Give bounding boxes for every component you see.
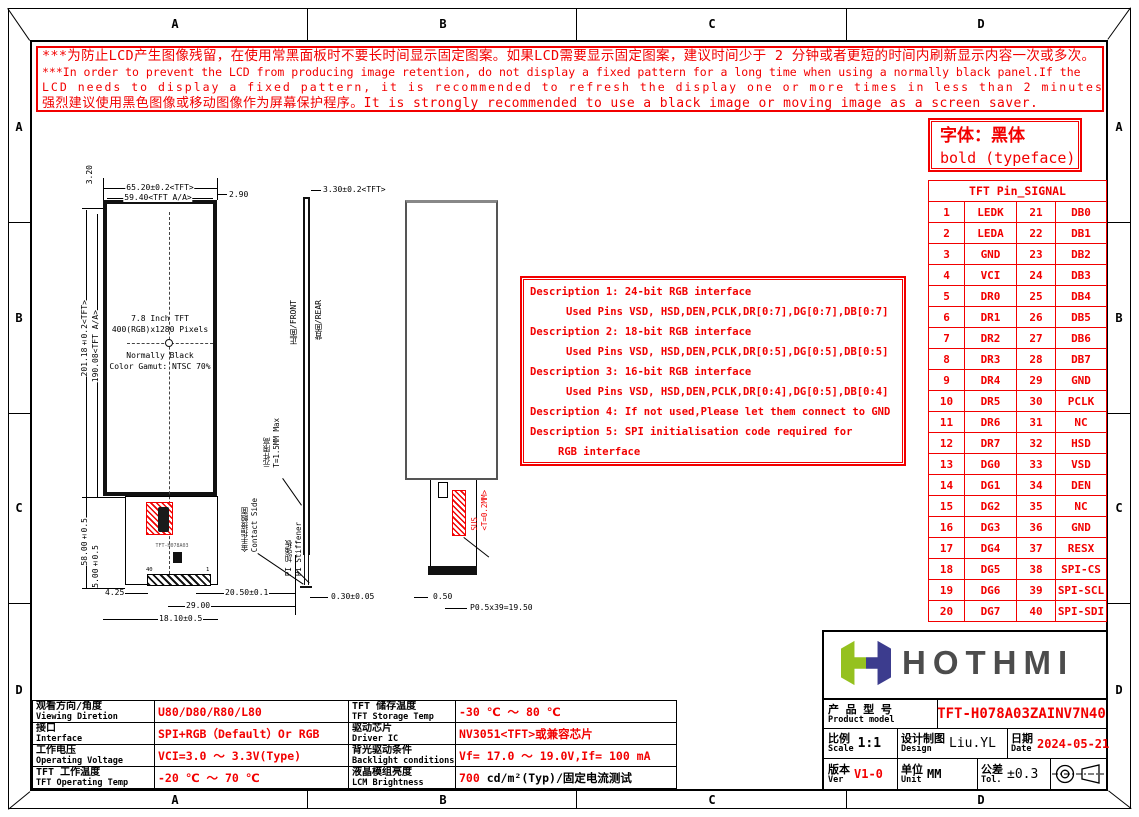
dim-bot-a: 4.25 <box>104 589 125 597</box>
pin-cell: DR1 <box>965 307 1017 328</box>
lcd-rear-view <box>405 200 498 480</box>
pin-cell: 31 <box>1017 412 1056 433</box>
pin-cell: 9 <box>929 370 965 391</box>
design-value: Liu.YL <box>949 736 996 751</box>
pin-cell: 20 <box>929 601 965 622</box>
lcd-side-view <box>303 197 310 555</box>
pin-cell: 39 <box>1017 580 1056 601</box>
description-line: Used Pins VSD, HSD,DEN,PCLK,DR[0:7],DG[0… <box>530 302 898 322</box>
pin-cell: 35 <box>1017 496 1056 517</box>
side-front-label: 正面/FRONT <box>290 300 298 345</box>
tol-value: ±0.3 <box>1007 767 1038 782</box>
pin-cell: 22 <box>1017 223 1056 244</box>
pin-cell: DR4 <box>965 370 1017 391</box>
spec-row: TFT 工作温度TFT Operating Temp-20 ℃ ～ 70 ℃ <box>33 767 349 789</box>
frame-tick <box>307 8 308 40</box>
fpc-pin40-label: 40 <box>146 567 153 573</box>
side-rear-label: 背面/REAR <box>315 300 323 340</box>
pin-cell: 28 <box>1017 349 1056 370</box>
frame-tick <box>8 222 30 223</box>
pin-cell: RESX <box>1056 538 1107 559</box>
date-label-en: Date <box>1011 745 1033 754</box>
pin-cell: DR0 <box>965 286 1017 307</box>
pin-cell: LEDK <box>965 202 1017 223</box>
pin-cell: NC <box>1056 496 1107 517</box>
font-note-en: bold (typeface) <box>940 148 1070 169</box>
dim-ext <box>82 497 125 498</box>
description-lines: Description 1: 24-bit RGB interfaceUsed … <box>523 279 903 463</box>
scale-cell: 比例Scale 1:1 <box>824 729 897 758</box>
grid-letter: C <box>15 501 22 515</box>
dim-height: 201.18±0.2<TFT> <box>81 300 89 376</box>
ver-label-cn: 版本 <box>828 764 850 776</box>
spec-value: -20 ℃ ～ 70 ℃ <box>155 767 349 789</box>
description-line: Description 5: SPI initialisation code r… <box>530 422 898 442</box>
pin-cell: GND <box>1056 370 1107 391</box>
grid-letter: A <box>171 793 178 807</box>
pin-row: 8DR328DB7 <box>929 349 1107 370</box>
spec-table-right: TFT 储存温度TFT Storage Temp-30 ℃ ～ 80 ℃驱动芯片… <box>348 700 677 789</box>
tolerance-cell: 公差Tol. ±0.3 <box>977 759 1050 789</box>
pin-row: 13DG033VSD <box>929 454 1107 475</box>
description-line: RGB interface <box>530 442 898 462</box>
version-cell: 版本Ver V1-0 <box>824 759 897 789</box>
pin-row: 20DG740SPI-SDI <box>929 601 1107 622</box>
pin-cell: 16 <box>929 517 965 538</box>
warning-line-mixed: 强烈建议使用黑色图像或移动图像作为屏幕保护程序。It is strongly r… <box>42 96 1098 112</box>
pin-cell: DG7 <box>965 601 1017 622</box>
spec-label: 接口Interface <box>33 723 155 745</box>
pin-cell: SPI-SCL <box>1056 580 1107 601</box>
pin-cell: 36 <box>1017 517 1056 538</box>
pin-cell: 21 <box>1017 202 1056 223</box>
component-height-cn: 元件限高 <box>262 418 271 468</box>
pin-row: 17DG437RESX <box>929 538 1107 559</box>
pin-cell: DR6 <box>965 412 1017 433</box>
dim-ext <box>82 208 103 209</box>
pin-row: 5DR025DB4 <box>929 286 1107 307</box>
pin-cell: 33 <box>1017 454 1056 475</box>
design-label-en: Design <box>901 745 945 754</box>
frame-tick <box>846 8 847 40</box>
dim-ext <box>103 178 104 200</box>
spec-row: 液晶模组亮度LCM Brightness700 cd/m²(Typ)/固定电流测… <box>349 767 677 789</box>
description-line: Used Pins VSD, HSD,DEN,PCLK,DR[0:4],DG[0… <box>530 382 898 402</box>
font-note-box: 字体：黑体 bold (typeface) <box>928 118 1082 172</box>
contact-side-en: Contact Side <box>250 498 259 552</box>
panel-spec-line: 7.8 Inch TFT <box>104 315 216 323</box>
description-line: Description 3: 16-bit RGB interface <box>530 362 898 382</box>
company-logo: HOTHMI <box>838 638 1074 688</box>
fpc-pin1-label: 1 <box>206 567 209 573</box>
date-value: 2024-05-21 <box>1037 737 1109 751</box>
dim-top-offset: 3.20 <box>86 165 94 184</box>
pin-cell: DB5 <box>1056 307 1107 328</box>
date-cell: 日期Date 2024-05-21 <box>1007 729 1106 758</box>
pin-cell: DG1 <box>965 475 1017 496</box>
pin-cell: 15 <box>929 496 965 517</box>
spec-value: U80/D80/R80/L80 <box>155 701 349 723</box>
spec-row: TFT 储存温度TFT Storage Temp-30 ℃ ～ 80 ℃ <box>349 701 677 723</box>
font-note-cn: 字体：黑体 <box>940 125 1070 148</box>
pin-cell: DG6 <box>965 580 1017 601</box>
grid-letter: C <box>1115 501 1122 515</box>
pin-row: 9DR429GND <box>929 370 1107 391</box>
unit-value: MM <box>927 767 941 781</box>
pin-cell: DR7 <box>965 433 1017 454</box>
pin-cell: 24 <box>1017 265 1056 286</box>
dim-bot-c: 29.00 <box>185 602 211 610</box>
pin-row: 14DG134DEN <box>929 475 1107 496</box>
pin-cell: DB7 <box>1056 349 1107 370</box>
pin-cell: DR5 <box>965 391 1017 412</box>
product-model-label-cell: 产 品 型 号 Product model <box>824 700 937 728</box>
pin-cell: 10 <box>929 391 965 412</box>
spec-value: 700 cd/m²(Typ)/固定电流测试 <box>456 767 677 789</box>
lcd-front-view <box>103 200 217 496</box>
unit-label-cn: 单位 <box>901 764 923 776</box>
hothmi-h-icon <box>838 638 894 688</box>
description-box: Description 1: 24-bit RGB interfaceUsed … <box>520 276 906 466</box>
pin-cell: DB2 <box>1056 244 1107 265</box>
panel-spec-line: Normally Black <box>104 352 216 360</box>
grid-letter: D <box>15 683 22 697</box>
dim-line <box>311 190 321 191</box>
description-line: Description 4: If not used,Please let th… <box>530 402 898 422</box>
pin-row: 1LEDK21DB0 <box>929 202 1107 223</box>
pin-table-title: TFT Pin_SIGNAL <box>929 181 1107 202</box>
first-angle-projection-icon <box>1052 762 1104 786</box>
dim-rear-pitch: P0.5x39=19.50 <box>469 604 534 612</box>
dim-bot-d: 18.10±0.5 <box>158 615 203 623</box>
rear-sus-hatch <box>452 490 466 536</box>
grid-letter: B <box>1115 311 1122 325</box>
pin-cell: 6 <box>929 307 965 328</box>
pin-cell: 12 <box>929 433 965 454</box>
spec-label: TFT 储存温度TFT Storage Temp <box>349 701 456 723</box>
pin-row: 4VCI24DB3 <box>929 265 1107 286</box>
product-model-label-cn: 产 品 型 号 <box>828 704 895 716</box>
pin-cell: DG3 <box>965 517 1017 538</box>
frame-tick <box>1108 413 1131 414</box>
scale-value: 1:1 <box>858 736 881 751</box>
unit-cell: 单位Unit MM <box>897 759 977 789</box>
pin-row: 16DG336GND <box>929 517 1107 538</box>
tol-label-en: Tol. <box>981 776 1003 785</box>
pi-stiffener-note: PI 加强板 PI Stiffener <box>284 522 303 576</box>
pin-cell: LEDA <box>965 223 1017 244</box>
dim-side-bottom: 0.30±0.05 <box>330 593 375 601</box>
pin-cell: GND <box>1056 517 1107 538</box>
pin-cell: 3 <box>929 244 965 265</box>
pin-cell: 1 <box>929 202 965 223</box>
pin-row: 6DR126DB5 <box>929 307 1107 328</box>
pin-cell: 17 <box>929 538 965 559</box>
pin-cell: SPI-CS <box>1056 559 1107 580</box>
pin-cell: 27 <box>1017 328 1056 349</box>
spec-value: -30 ℃ ～ 80 ℃ <box>456 701 677 723</box>
fpc-connector-fingers <box>147 574 211 586</box>
pin-cell: HSD <box>1056 433 1107 454</box>
pin-cell: DG0 <box>965 454 1017 475</box>
frame-tick <box>576 8 577 40</box>
frame-tick <box>1108 603 1131 604</box>
grid-letter: A <box>15 120 22 134</box>
dim-height-aa: 190.08<TFT A/A> <box>92 310 100 382</box>
pin-row: 2LEDA22DB1 <box>929 223 1107 244</box>
grid-letter: D <box>1115 683 1122 697</box>
pin-cell: 18 <box>929 559 965 580</box>
warning-line-cn: ***为防止LCD产生图像残留，在使用常黑面板时不要长时间显示固定图案。如果LC… <box>42 49 1098 65</box>
fpc-component-small <box>173 552 182 563</box>
rear-pull-tab <box>438 482 448 498</box>
dim-line <box>217 194 227 195</box>
panel-spec-line: 400(RGB)x1280 Pixels <box>104 326 216 334</box>
pin-cell: 8 <box>929 349 965 370</box>
product-model-value: TFT-H078A03ZAINV7N40 <box>937 706 1106 722</box>
pin-row: 11DR631NC <box>929 412 1107 433</box>
spec-row: 工作电压Operating VoltageVCI=3.0 ～ 3.3V(Type… <box>33 745 349 767</box>
frame-tick <box>846 791 847 809</box>
pin-cell: DR3 <box>965 349 1017 370</box>
pin-cell: 11 <box>929 412 965 433</box>
fpc-component <box>158 507 169 532</box>
frame-tick <box>576 791 577 809</box>
rear-connector-strip <box>428 566 477 575</box>
spec-value: SPI+RGB（Default）Or RGB <box>155 723 349 745</box>
pin-cell: DEN <box>1056 475 1107 496</box>
pin-row: 18DG538SPI-CS <box>929 559 1107 580</box>
scale-label-en: Scale <box>828 745 854 754</box>
spec-value: Vf= 17.0 ～ 19.0V,If= 100 mA <box>456 745 677 767</box>
product-model-label-en: Product model <box>828 716 895 725</box>
pin-cell: 37 <box>1017 538 1056 559</box>
spec-table-left: 观看方向/角度Viewing DiretionU80/D80/R80/L80接口… <box>32 700 349 789</box>
pin-cell: 19 <box>929 580 965 601</box>
spec-label: 驱动芯片Driver IC <box>349 723 456 745</box>
pin-cell: 4 <box>929 265 965 286</box>
warning-line-en1: ***In order to prevent the LCD from prod… <box>42 65 1098 81</box>
pin-row: 15DG235NC <box>929 496 1107 517</box>
grid-letter: A <box>1115 120 1122 134</box>
dim-fpc-step: 5.00±0.5 <box>92 545 100 588</box>
spec-row: 接口InterfaceSPI+RGB（Default）Or RGB <box>33 723 349 745</box>
center-mark <box>165 339 173 347</box>
dim-top-aa: 59.40<TFT A/A> <box>123 194 192 202</box>
pin-cell: 7 <box>929 328 965 349</box>
pin-cell: 30 <box>1017 391 1056 412</box>
tft-pin-signal-table: TFT Pin_SIGNAL 1LEDK21DB02LEDA22DB13GND2… <box>928 180 1107 622</box>
pin-cell: DB0 <box>1056 202 1107 223</box>
spec-label: 工作电压Operating Voltage <box>33 745 155 767</box>
pin-cell: DB4 <box>1056 286 1107 307</box>
pin-cell: VSD <box>1056 454 1107 475</box>
pin-cell: PCLK <box>1056 391 1107 412</box>
ver-label-en: Ver <box>828 776 850 785</box>
contact-side-note: 金手指接触面 Contact Side <box>240 498 259 552</box>
dim-ext <box>217 178 218 200</box>
pin-cell: GND <box>965 244 1017 265</box>
spec-row: 驱动芯片Driver ICNV3051<TFT>或兼容芯片 <box>349 723 677 745</box>
frame-tick <box>8 603 30 604</box>
pin-cell: SPI-SDI <box>1056 601 1107 622</box>
dim-thickness: 3.30±0.2<TFT> <box>322 186 387 194</box>
dim-line <box>445 608 467 609</box>
spec-label: TFT 工作温度TFT Operating Temp <box>33 767 155 789</box>
grid-letter: B <box>15 311 22 325</box>
dim-rear-strip: 0.50 <box>432 593 453 601</box>
pin-cell: 40 <box>1017 601 1056 622</box>
pin-cell: 34 <box>1017 475 1056 496</box>
spec-value: VCI=3.0 ～ 3.3V(Type) <box>155 745 349 767</box>
spec-row: 背光驱动条件Backlight conditionsVf= 17.0 ～ 19.… <box>349 745 677 767</box>
sus-note: SUS <T=0.2MM> <box>470 490 489 531</box>
pin-row: 10DR530PCLK <box>929 391 1107 412</box>
pin-row: 3GND23DB2 <box>929 244 1107 265</box>
frame-tick <box>307 791 308 809</box>
tol-label-cn: 公差 <box>981 764 1003 776</box>
grid-letter: C <box>708 17 715 31</box>
grid-letter: B <box>439 17 446 31</box>
dim-top-width: 65.20±0.2<TFT> <box>125 184 194 192</box>
pin-cell: 13 <box>929 454 965 475</box>
design-cell: 设计制图Design Liu.YL <box>897 729 1007 758</box>
pin-cell: 32 <box>1017 433 1056 454</box>
pin-row: 19DG639SPI-SCL <box>929 580 1107 601</box>
pi-stiffener-cn: PI 加强板 <box>284 522 293 576</box>
pin-cell: DG5 <box>965 559 1017 580</box>
pin-cell: DG2 <box>965 496 1017 517</box>
pin-cell: NC <box>1056 412 1107 433</box>
pin-cell: 14 <box>929 475 965 496</box>
frame-tick <box>1108 222 1131 223</box>
dim-line <box>414 597 428 598</box>
lcd-retention-warning-box: ***为防止LCD产生图像残留，在使用常黑面板时不要长时间显示固定图案。如果LC… <box>36 46 1104 112</box>
pin-row: 7DR227DB6 <box>929 328 1107 349</box>
pin-cell: VCI <box>965 265 1017 286</box>
ver-value: V1-0 <box>854 767 883 781</box>
grid-letter: A <box>171 17 178 31</box>
fpc-marking: TFT-H078A03 <box>143 543 201 549</box>
grid-letter: D <box>977 793 984 807</box>
side-view-foot <box>300 586 312 588</box>
dim-bot-b: 20.50±0.1 <box>224 589 269 597</box>
pin-cell: 5 <box>929 286 965 307</box>
spec-label: 液晶模组亮度LCM Brightness <box>349 767 456 789</box>
component-height-note: 元件限高 T=1.5MM Max <box>262 418 281 468</box>
unit-label-en: Unit <box>901 776 923 785</box>
grid-letter: B <box>439 793 446 807</box>
pin-cell: 2 <box>929 223 965 244</box>
component-height-en: T=1.5MM Max <box>272 418 281 468</box>
product-model-value-cell: TFT-H078A03ZAINV7N40 <box>937 700 1106 728</box>
pin-cell: DR2 <box>965 328 1017 349</box>
warning-line-en2: LCD needs to display a fixed pattern, it… <box>42 80 1098 96</box>
pin-cell: 23 <box>1017 244 1056 265</box>
spec-label: 背光驱动条件Backlight conditions <box>349 745 456 767</box>
dim-right-offset: 2.90 <box>228 191 249 199</box>
pin-row: 12DR732HSD <box>929 433 1107 454</box>
pin-cell: DB1 <box>1056 223 1107 244</box>
description-line: Description 1: 24-bit RGB interface <box>530 282 898 302</box>
pin-cell: 26 <box>1017 307 1056 328</box>
hothmi-logo-text: HOTHMI <box>902 644 1074 682</box>
description-line: Description 2: 18-bit RGB interface <box>530 322 898 342</box>
sus-thickness: <T=0.2MM> <box>480 490 489 531</box>
spec-value: NV3051<TFT>或兼容芯片 <box>456 723 677 745</box>
grid-letter: C <box>708 793 715 807</box>
pin-cell: DB6 <box>1056 328 1107 349</box>
pin-cell: 29 <box>1017 370 1056 391</box>
pin-cell: 38 <box>1017 559 1056 580</box>
panel-spec-line: Color Gamut: NTSC 70% <box>104 363 216 371</box>
pin-cell: DB3 <box>1056 265 1107 286</box>
spec-row: 观看方向/角度Viewing DiretionU80/D80/R80/L80 <box>33 701 349 723</box>
projection-symbol-cell <box>1050 759 1106 789</box>
frame-tick <box>8 413 30 414</box>
pi-stiffener-en: PI Stiffener <box>294 522 303 576</box>
sus-label: SUS <box>470 490 479 531</box>
grid-letter: D <box>977 17 984 31</box>
description-line: Used Pins VSD, HSD,DEN,PCLK,DR[0:5],DG[0… <box>530 342 898 362</box>
dim-fpc-len: 58.00±0.5 <box>81 518 89 566</box>
spec-label: 观看方向/角度Viewing Diretion <box>33 701 155 723</box>
datasheet-sheet: AAAABBBBCCCCDDDD ***为防止LCD产生图像残留，在使用常黑面板… <box>0 0 1139 817</box>
contact-side-cn: 金手指接触面 <box>240 498 249 552</box>
pin-cell: 25 <box>1017 286 1056 307</box>
pin-cell: DG4 <box>965 538 1017 559</box>
dim-line <box>310 597 328 598</box>
